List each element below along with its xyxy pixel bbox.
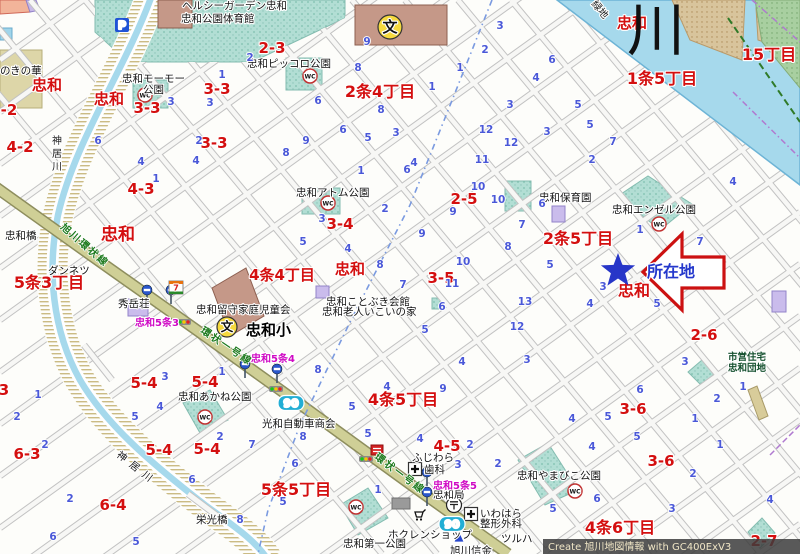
block-number: 1 <box>152 173 159 185</box>
facility-label: 忠和保育園 <box>539 191 592 204</box>
wc-icon: WC <box>652 217 666 231</box>
block-number: 7 <box>609 136 616 148</box>
block-number: 5 <box>574 99 581 111</box>
area-label: 3 <box>0 381 9 399</box>
housing-label: 忠和団地 <box>728 362 767 374</box>
hospital-icon <box>465 508 478 521</box>
block-number: 10 <box>471 181 486 193</box>
area-label: 4-3 <box>127 180 154 198</box>
block-number: 9 <box>439 383 446 395</box>
facility-label: 栄光橋 <box>196 513 228 526</box>
hospital-icon <box>409 463 422 476</box>
block-number: 6 <box>593 493 600 505</box>
block-number: 3 <box>161 371 168 383</box>
svg-text:90: 90 <box>283 397 299 410</box>
block-number: 2 <box>246 52 253 64</box>
facility-label: 忠和公園体育館 <box>181 12 255 25</box>
area-label: 4条5丁目 <box>368 390 438 409</box>
area-label: 4条6丁目 <box>585 518 655 537</box>
area-label: 2条4丁目 <box>345 82 415 101</box>
facility-label: 忠和小 <box>246 321 291 339</box>
block-number: 3 <box>523 354 530 366</box>
block-number: 5 <box>299 236 306 248</box>
area-label: 5-4 <box>191 373 218 391</box>
block-number: 6 <box>636 384 643 396</box>
facility-label: 旭川信金 <box>450 544 492 554</box>
block-number: 4 <box>458 356 465 368</box>
block-number: 1 <box>218 366 225 378</box>
facility-label: 忠和あかね公園 <box>178 391 252 403</box>
block-number: 5 <box>132 536 139 548</box>
area-label: 5-4 <box>145 441 172 459</box>
area-label: 忠和 <box>618 281 650 300</box>
block-number: 6 <box>291 458 298 470</box>
block-number: 6 <box>548 54 555 66</box>
credit-text: Create 旭川地図情報 with GC400ExV3 <box>548 540 731 553</box>
block-number: 13 <box>518 296 533 308</box>
block-number: 4 <box>532 72 539 84</box>
block-number: 2 <box>381 203 388 215</box>
facility-label: 光和自動車商会 <box>262 417 336 430</box>
block-number: 5 <box>586 119 593 131</box>
housing-label: 市営住宅 <box>728 351 767 363</box>
block-number: 10 <box>456 256 471 268</box>
block-number: 7 <box>696 236 703 248</box>
block-number: 5 <box>604 411 611 423</box>
block-number: 8 <box>377 104 384 116</box>
block-number: 8 <box>504 241 511 253</box>
block-number: 4 <box>588 441 595 453</box>
wc-icon: WC <box>303 69 317 83</box>
block-number: 7 <box>518 219 525 231</box>
map-stage[interactable]: WCWCWCWCWCWCWC文文P79090 忠和忠和2-33-33-33-32… <box>0 0 800 554</box>
block-number: 11 <box>475 154 490 166</box>
block-number: 8 <box>282 147 289 159</box>
block-number: 5 <box>421 324 428 336</box>
route-90-shield: 90 <box>278 396 304 411</box>
area-label: 1条5丁目 <box>627 69 697 88</box>
credit-bar: Create 旭川地図情報 with GC400ExV3 <box>543 539 800 554</box>
area-label: 3-6 <box>647 452 674 470</box>
facility-label: ヘルシーガーデン忠和 <box>182 0 287 12</box>
block-number: 5 <box>653 298 660 310</box>
facility-label: 忠和アトム公園 <box>296 187 370 199</box>
location-label: 所在地 <box>647 262 695 281</box>
area-label: 3-3 <box>200 134 227 152</box>
traffic-signal-icon <box>269 386 283 392</box>
block-number: 1 <box>456 62 463 74</box>
block-number: 3 <box>206 97 213 109</box>
facility-label: 公園 <box>143 84 164 96</box>
block-number: 2 <box>588 154 595 166</box>
facility-label: 忠和老人いこいの家 <box>322 305 417 318</box>
svg-text:WC: WC <box>304 74 316 81</box>
block-number: 3 <box>496 20 503 32</box>
block-number: 4 <box>729 176 736 188</box>
block-number: 3 <box>599 281 606 293</box>
svg-text:WC: WC <box>653 222 665 229</box>
area-label: 4-2 <box>6 138 33 156</box>
block-number: 4 <box>416 433 423 445</box>
traffic-signal-icon <box>177 319 191 325</box>
block-number: 5 <box>633 431 640 443</box>
area-label: 2-3 <box>258 39 285 57</box>
wc-icon: WC <box>349 500 363 514</box>
area-label: 忠和 <box>32 76 62 94</box>
svg-text:WC: WC <box>350 505 362 512</box>
area-label: 3-3 <box>133 99 160 117</box>
area-label: 忠和 <box>335 260 365 278</box>
block-number: 2 <box>195 135 202 147</box>
block-number: 4 <box>410 157 417 169</box>
block-number: 1 <box>716 439 723 451</box>
block-number: 3 <box>506 99 513 111</box>
block-number: 7 <box>399 279 406 291</box>
block-number: 4 <box>156 401 163 413</box>
block-number: 5 <box>549 503 556 515</box>
facility-label: ダンネツ <box>48 264 90 277</box>
block-number: 2 <box>713 393 720 405</box>
facility-label: 忠和ピッコロ公園 <box>247 58 331 70</box>
block-number: 2 <box>216 431 223 443</box>
block-number: 8 <box>354 62 361 74</box>
block-number: 5 <box>348 401 355 413</box>
block-number: 5 <box>279 496 286 508</box>
block-number: 5 <box>546 259 553 271</box>
block-number: 9 <box>449 206 456 218</box>
block-number: 2 <box>66 493 73 505</box>
parking-icon: P <box>115 18 129 32</box>
block-number: 2 <box>466 439 473 451</box>
seven-eleven-icon: 7 <box>169 281 183 294</box>
bldg-lavender-3 <box>772 291 786 312</box>
block-number: 8 <box>299 431 306 443</box>
area-label: 5条5丁目 <box>261 480 331 499</box>
block-number: 1 <box>636 224 643 236</box>
block-number: 6 <box>94 135 101 147</box>
facility-label: 歯科 <box>424 463 445 476</box>
facility-label: 忠和エンゼル公園 <box>612 204 696 216</box>
block-number: 5 <box>364 428 371 440</box>
area-label: 3-4 <box>326 215 353 233</box>
facility-label: 忠和第一公園 <box>343 537 406 550</box>
block-number: 2 <box>689 468 696 480</box>
block-number: 4 <box>137 156 144 168</box>
bldg-gray <box>392 498 410 509</box>
block-number: 9 <box>363 36 370 48</box>
svg-text:WC: WC <box>199 415 211 422</box>
svg-text:WC: WC <box>569 489 581 496</box>
block-number: 4 <box>344 243 351 255</box>
river-name-label: 神居川 <box>52 134 62 173</box>
block-number: 12 <box>510 321 525 333</box>
block-number: 6 <box>438 301 445 313</box>
block-number: 6 <box>403 164 410 176</box>
area-label: 2-6 <box>690 326 717 344</box>
block-number: 6 <box>314 95 321 107</box>
facility-label: ふじわら <box>412 452 454 464</box>
area-label: 3-6 <box>619 400 646 418</box>
svg-text:WC: WC <box>322 201 334 208</box>
area-label: 忠和 <box>94 90 124 108</box>
facility-label: 忠和橋 <box>5 229 37 242</box>
facility-label: ツルハ <box>501 533 533 545</box>
area-label: 15丁目 <box>742 45 796 64</box>
wc-icon: WC <box>568 484 582 498</box>
block-number: 6 <box>188 474 195 486</box>
block-number: 4 <box>192 155 199 167</box>
svg-text:文: 文 <box>221 319 234 334</box>
bus-stop-label: 忠和5条4 <box>251 352 295 365</box>
area-label: 4条4丁目 <box>249 266 315 284</box>
school-icon: 文 <box>378 15 402 39</box>
block-number: 3 <box>681 356 688 368</box>
block-number: 1 <box>428 81 435 93</box>
block-number: 1 <box>739 381 746 393</box>
block-number: 6 <box>538 198 545 210</box>
area-label: 忠和 <box>101 224 135 245</box>
svg-text:7: 7 <box>173 284 179 293</box>
block-number: 12 <box>504 137 519 149</box>
block-number: 4 <box>383 381 390 393</box>
block-number: 1 <box>218 69 225 81</box>
area-label: 2条5丁目 <box>543 229 613 248</box>
facility-label: 忠和留守家庭児童会 <box>196 303 291 316</box>
block-number: 8 <box>236 514 243 526</box>
block-number: 6 <box>339 124 346 136</box>
block-number: 3 <box>318 213 325 225</box>
block-number: 8 <box>314 364 321 376</box>
facility-label: のきの華 <box>0 65 42 77</box>
block-number: 3 <box>543 126 550 138</box>
bus-stop-label: 忠和5条5 <box>433 479 477 492</box>
block-number: 5 <box>364 132 371 144</box>
block-number: 1 <box>691 413 698 425</box>
block-number: 5 <box>131 411 138 423</box>
block-number: 4 <box>586 298 593 310</box>
facility-label: 整形外科 <box>480 517 522 530</box>
block-number: 8 <box>376 259 383 271</box>
block-number: 6 <box>49 531 56 543</box>
area-label: 5-4 <box>130 374 157 392</box>
map-canvas[interactable]: WCWCWCWCWCWCWC文文P79090 忠和忠和2-33-33-33-32… <box>0 0 800 554</box>
block-number: 1 <box>357 165 364 177</box>
block-number: 11 <box>445 278 460 290</box>
block-number: 12 <box>479 124 494 136</box>
area-label: -2 <box>1 101 18 119</box>
block-number: 9 <box>302 135 309 147</box>
block-number: 4 <box>568 413 575 425</box>
facility-label: 忠和やまびこ公園 <box>517 470 601 482</box>
block-number: 1 <box>34 389 41 401</box>
block-number: 10 <box>491 194 506 206</box>
bus-stop-label: 忠和5条3 <box>135 316 179 329</box>
traffic-signal-icon <box>359 456 373 462</box>
block-number: 7 <box>248 439 255 451</box>
block-number: 3 <box>167 96 174 108</box>
facility-label: 秀岳荘 <box>118 298 150 310</box>
block-number: 2 <box>481 44 488 56</box>
wc-icon: WC <box>198 410 212 424</box>
svg-text:P: P <box>118 19 126 32</box>
block-number: 3 <box>392 127 399 139</box>
block-number: 9 <box>418 228 425 240</box>
area-label: 6-3 <box>13 445 40 463</box>
block-number: 3 <box>668 503 675 515</box>
block-number: 2 <box>13 411 20 423</box>
block-number: 4 <box>766 494 773 506</box>
area-label: 6-4 <box>99 496 126 514</box>
block-number: 2 <box>41 439 48 451</box>
salmon-block <box>0 0 30 14</box>
bldg-lavender-1 <box>552 206 565 222</box>
block-number: 2 <box>494 458 501 470</box>
block-number: 3 <box>454 459 461 471</box>
svg-text:文: 文 <box>382 18 398 36</box>
school-icon: 文 <box>217 317 237 337</box>
area-label: 3-3 <box>203 80 230 98</box>
block-number: 1 <box>374 484 381 496</box>
river-kanji-label: 川 <box>627 0 685 64</box>
